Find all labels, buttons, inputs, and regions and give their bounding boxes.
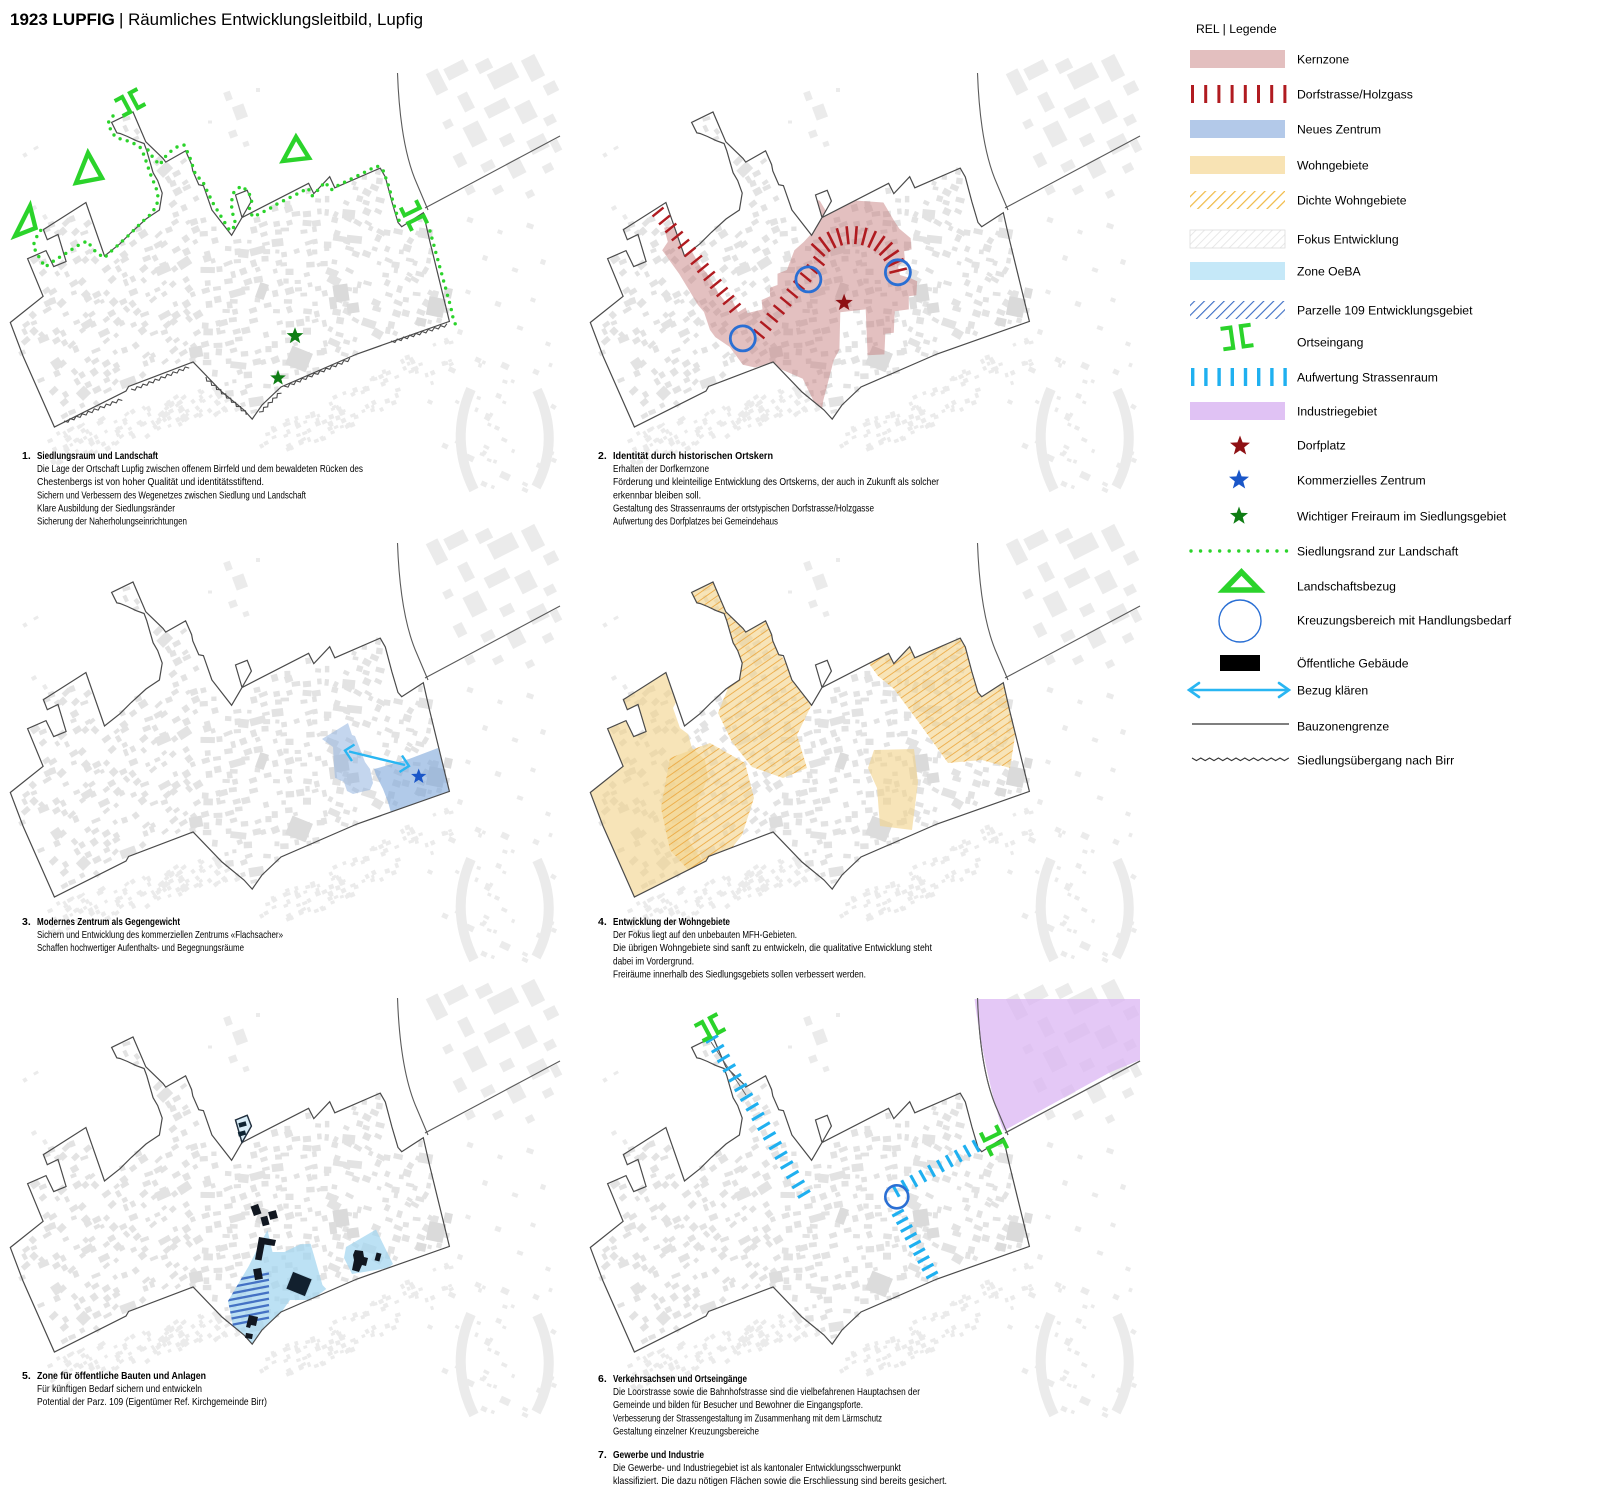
svg-text:Siedlungsübergang nach Birr: Siedlungsübergang nach Birr <box>1297 754 1454 768</box>
svg-text:Industriegebiet: Industriegebiet <box>1297 405 1378 419</box>
svg-text:Kernzone: Kernzone <box>1297 53 1349 67</box>
svg-text:Der Fokus liegt auf den unbeba: Der Fokus liegt auf den unbebauten MFH-G… <box>613 929 797 941</box>
svg-text:Die Lage der Ortschaft Lupfig: Die Lage der Ortschaft Lupfig zwischen o… <box>37 463 363 475</box>
svg-text:Chestenbergs ist von hoher Qua: Chestenbergs ist von hoher Qualität und … <box>37 476 264 488</box>
svg-text:Öffentliche Gebäude: Öffentliche Gebäude <box>1297 657 1409 671</box>
svg-text:REL | Legende: REL | Legende <box>1196 22 1277 36</box>
svg-text:1923 LUPFIG: 1923 LUPFIG <box>10 10 115 29</box>
svg-text:Kreuzungsbereich mit Handlungs: Kreuzungsbereich mit Handlungsbedarf <box>1297 614 1512 628</box>
svg-text:Siedlungsrand zur Landschaft: Siedlungsrand zur Landschaft <box>1297 545 1459 559</box>
svg-text:Erhalten der Dorfkernzone: Erhalten der Dorfkernzone <box>613 463 709 475</box>
svg-text:Sicherung der Naherholungseinr: Sicherung der Naherholungseinrichtungen <box>37 516 187 528</box>
svg-text:3.: 3. <box>22 916 31 928</box>
svg-text:dabei im Vordergrund.: dabei im Vordergrund. <box>613 955 694 967</box>
svg-text:Aufwertung des Dorfplatzes bei: Aufwertung des Dorfplatzes bei Gemeindeh… <box>613 516 778 528</box>
svg-text:Gewerbe und Industrie: Gewerbe und Industrie <box>613 1449 704 1461</box>
svg-text:Schaffen hochwertiger Aufentha: Schaffen hochwertiger Aufenthalts- und B… <box>37 942 244 954</box>
svg-text:Landschaftsbezug: Landschaftsbezug <box>1297 580 1396 594</box>
svg-text:Neues Zentrum: Neues Zentrum <box>1297 123 1381 137</box>
svg-text:4.: 4. <box>598 916 607 928</box>
svg-text:Die übrigen Wohngebiete sind s: Die übrigen Wohngebiete sind sanft zu en… <box>613 942 932 954</box>
svg-text:Zone für öffentliche Bauten un: Zone für öffentliche Bauten und Anlagen <box>37 1370 206 1382</box>
svg-text:Kommerzielles Zentrum: Kommerzielles Zentrum <box>1297 474 1426 488</box>
svg-text:Aufwertung Strassenraum: Aufwertung Strassenraum <box>1297 371 1438 385</box>
svg-text:Entwicklung der Wohngebiete: Entwicklung der Wohngebiete <box>613 916 730 928</box>
svg-text:erkennbar bleiben soll.: erkennbar bleiben soll. <box>613 489 701 501</box>
svg-text:Bauzonengrenze: Bauzonengrenze <box>1297 720 1389 734</box>
svg-text:Verbesserung der Strassengesta: Verbesserung der Strassengestaltung im Z… <box>613 1412 882 1424</box>
svg-text:Dorfplatz: Dorfplatz <box>1297 439 1346 453</box>
svg-text:Klare Ausbildung der Siedlungs: Klare Ausbildung der Siedlungsränder <box>37 502 175 514</box>
svg-text:Verkehrsachsen und Ortseingäng: Verkehrsachsen und Ortseingänge <box>613 1373 747 1385</box>
svg-text:5.: 5. <box>22 1370 31 1382</box>
svg-text:Dorfstrasse/Holzgass: Dorfstrasse/Holzgass <box>1297 88 1413 102</box>
svg-text:| Räumliches Entwicklungsleitb: | Räumliches Entwicklungsleitbild, Lupfi… <box>119 10 423 29</box>
svg-text:7.: 7. <box>598 1449 607 1461</box>
svg-text:Gestaltung des Strassenraums d: Gestaltung des Strassenraums der ortstyp… <box>613 502 874 514</box>
svg-text:Förderung und kleinteilige Ent: Förderung und kleinteilige Entwicklung d… <box>613 476 939 488</box>
svg-text:Zone OeBA: Zone OeBA <box>1297 265 1362 279</box>
svg-text:Sichern und Entwicklung des ko: Sichern und Entwicklung des kommerzielle… <box>37 929 283 941</box>
svg-text:Wichtiger Freiraum im Siedlung: Wichtiger Freiraum im Siedlungsgebiet <box>1297 510 1507 524</box>
svg-text:Parzelle 109 Entwicklungsgebie: Parzelle 109 Entwicklungsgebiet <box>1297 304 1473 318</box>
svg-text:Potential der Parz. 109 (Eigen: Potential der Parz. 109 (Eigentümer Ref.… <box>37 1396 267 1408</box>
svg-text:6.: 6. <box>598 1373 607 1385</box>
svg-text:1.: 1. <box>22 450 31 462</box>
svg-text:Fokus Entwicklung: Fokus Entwicklung <box>1297 233 1399 247</box>
svg-text:Identität durch historischen O: Identität durch historischen Ortskern <box>613 450 773 462</box>
svg-text:Modernes Zentrum als Gegengewi: Modernes Zentrum als Gegengewicht <box>37 916 180 928</box>
svg-text:Bezug klären: Bezug klären <box>1297 684 1368 698</box>
svg-text:2.: 2. <box>598 450 607 462</box>
svg-text:Siedlungsraum und Landschaft: Siedlungsraum und Landschaft <box>37 450 158 462</box>
svg-text:Freiräume innerhalb des Siedlu: Freiräume innerhalb des Siedlungsgebiets… <box>613 968 866 980</box>
svg-text:Gemeinde und bilden für Besuch: Gemeinde und bilden für Besucher und Bew… <box>613 1399 863 1411</box>
svg-text:Gestaltung einzelner Kreuzungs: Gestaltung einzelner Kreuzungsbereiche <box>613 1425 759 1437</box>
svg-text:Die Gewerbe- und Industriegebi: Die Gewerbe- und Industriegebiet ist als… <box>613 1462 901 1474</box>
svg-text:Ortseingang: Ortseingang <box>1297 336 1363 350</box>
svg-text:Die Loorstrasse sowie die Bahn: Die Loorstrasse sowie die Bahnhofstrasse… <box>613 1386 920 1398</box>
svg-text:Wohngebiete: Wohngebiete <box>1297 159 1369 173</box>
svg-text:Dichte Wohngebiete: Dichte Wohngebiete <box>1297 194 1407 208</box>
svg-text:klassifiziert. Die dazu nötige: klassifiziert. Die dazu nötigen Flächen … <box>613 1475 947 1487</box>
svg-text:Sichern und Verbessern des Weg: Sichern und Verbessern des Wegenetzes zw… <box>37 489 306 501</box>
svg-text:Für künftigen Bedarf sichern u: Für künftigen Bedarf sichern und entwick… <box>37 1383 202 1395</box>
